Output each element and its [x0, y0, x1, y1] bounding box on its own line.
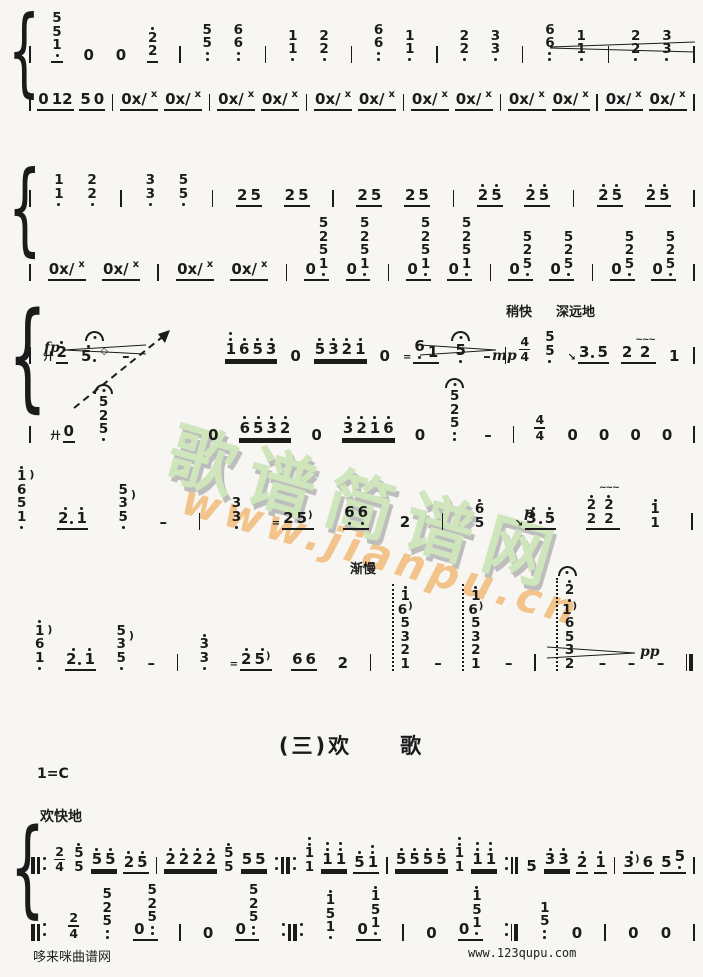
- note-token: 5: [666, 258, 675, 278]
- note-token: 1: [371, 884, 380, 904]
- note-group: 0x/x: [217, 92, 255, 111]
- note-digit: 6: [643, 855, 653, 870]
- note-digit: 1: [669, 349, 679, 364]
- barline: [112, 94, 114, 111]
- note-group: 0x/x: [358, 92, 396, 111]
- note-token: 2: [357, 188, 367, 203]
- note-group: 0x/x: [261, 92, 299, 111]
- octave-dot-below: [323, 58, 326, 61]
- note-cell: 55: [660, 849, 686, 874]
- superscript-mark: x: [195, 89, 201, 100]
- end-repeat-barline: [504, 922, 518, 941]
- octave-dot-below: [122, 526, 125, 529]
- note-token: 0: [94, 92, 104, 107]
- note-token: 0x/: [359, 92, 385, 107]
- note-cell: 525: [101, 888, 112, 941]
- octave-dot-below: [91, 203, 94, 206]
- barline: [490, 264, 492, 281]
- note-digit: 0: [572, 926, 582, 941]
- note-token: 0: [661, 926, 671, 941]
- note-digit: 1: [305, 861, 314, 875]
- octave-dot-below: [543, 930, 546, 933]
- note-cell: 0x/x: [120, 92, 158, 111]
- note-digit: 5: [99, 423, 108, 437]
- note-cell: 0: [571, 926, 583, 941]
- note-token: 3: [343, 415, 353, 436]
- note-cell: 11: [471, 840, 497, 874]
- note-cell: 0: [660, 926, 672, 941]
- note-token: 5: [255, 852, 265, 867]
- octave-dot-below: [252, 926, 255, 929]
- time-signature: 24: [54, 846, 65, 874]
- staff-line-upper: 5510022556611226611223366112233: [28, 12, 696, 63]
- note-digit: 6: [240, 421, 250, 436]
- note-token: 3: [266, 336, 276, 357]
- barline: [351, 46, 353, 63]
- note-digit: 0: [64, 424, 74, 439]
- note-token: 0x/: [121, 92, 147, 107]
- time-signature: 44: [519, 336, 530, 364]
- note-token: 5: [102, 915, 111, 941]
- begin-repeat-barline: [31, 855, 47, 874]
- note-cell: 0: [598, 428, 610, 443]
- chord-stack: 55: [223, 841, 234, 874]
- mord-ornament: =: [272, 518, 280, 529]
- note-token: 2: [165, 846, 175, 867]
- octave-dot-above: [489, 842, 492, 845]
- double-repeat-barline: [274, 855, 297, 874]
- note-token: 5: [74, 841, 83, 861]
- note-cell: 0525: [235, 884, 260, 941]
- note-digit: 5: [148, 911, 157, 925]
- arpeggio-mark: ): [47, 623, 52, 636]
- barline: [592, 264, 594, 281]
- note-group: 2~~~2: [621, 338, 656, 364]
- note-digit: 1: [322, 852, 332, 867]
- note-digit: 6: [234, 37, 243, 51]
- superscript-mark: x: [261, 259, 267, 270]
- time-signature: 44: [534, 414, 545, 442]
- note-token: 5: [354, 849, 364, 870]
- octave-dot-below: [203, 667, 206, 670]
- note-token: 2: [622, 345, 632, 360]
- octave-dot-below: [408, 58, 411, 61]
- note-group: 0: [660, 926, 672, 941]
- note-token: 2: [283, 511, 293, 526]
- note-token: 5: [540, 915, 549, 941]
- staff-line: 1651)21535)–33=25)66265↘3522~~~2211: [16, 458, 694, 530]
- note-digit: 1: [472, 917, 481, 931]
- note-group: 55: [91, 846, 117, 871]
- note-digit: 0x/: [218, 92, 244, 107]
- note-token: 1: [17, 511, 26, 531]
- octave-dot-below: [206, 58, 209, 61]
- note-token: 5: [661, 855, 671, 870]
- note-digit: 3: [579, 345, 589, 360]
- note-token: 3: [328, 336, 338, 357]
- octave-dot-below: [252, 932, 255, 935]
- note-token: 1: [288, 43, 297, 63]
- note-group: 0: [83, 48, 95, 63]
- note-token: 5: [74, 861, 83, 875]
- octave-dot-below: [665, 58, 668, 61]
- note-group: 0151: [458, 884, 483, 941]
- note-cell: 11: [287, 30, 298, 63]
- staff-line-upper: 245555252222555511115155551111533213)655: [30, 832, 696, 874]
- begin-repeat-barline: [31, 922, 47, 941]
- note-group: 0525: [651, 231, 676, 282]
- note-group: 22~~~22: [586, 486, 620, 530]
- note-token: 0: [134, 922, 144, 937]
- note-digit: 0x/: [49, 262, 75, 277]
- note-digit: 2: [237, 188, 247, 203]
- note-digit: 1: [326, 921, 335, 935]
- note-token: –: [484, 428, 492, 443]
- note-token: 0: [357, 922, 367, 937]
- octave-dot-below: [494, 58, 497, 61]
- note-token: 0x/: [315, 92, 341, 107]
- octave-dot-below: [348, 522, 351, 525]
- note-cell: 1653: [225, 330, 278, 364]
- note-digit: 5: [202, 37, 211, 51]
- note-digit: 3: [200, 652, 209, 666]
- barline: [691, 513, 693, 530]
- chord-stack: 161: [34, 619, 45, 672]
- note-group: 66: [291, 652, 317, 671]
- note-cell: 2: [399, 515, 411, 530]
- note-digit: 3: [545, 852, 555, 867]
- note-token: 3: [491, 43, 500, 63]
- note-cell: 05251: [447, 217, 472, 281]
- note-token: 0x/: [509, 92, 535, 107]
- chord-stack: 525: [523, 231, 532, 278]
- note-token: 1: [305, 861, 314, 875]
- note-cell: 3216: [342, 415, 395, 443]
- note-digit: 5: [119, 511, 128, 525]
- note-token: 5: [545, 345, 554, 365]
- note-group: 0x/x: [508, 92, 546, 111]
- note-digit: 3: [624, 855, 634, 870]
- octave-dot-below: [424, 273, 427, 276]
- superscript-mark: x: [133, 259, 139, 270]
- octave-dot-below: [237, 58, 240, 61]
- note-token: 3: [545, 846, 555, 867]
- note-group: 25: [356, 188, 382, 207]
- note-group: 25): [240, 646, 271, 671]
- note-token: 2: [148, 45, 157, 59]
- note-token: 2: [206, 846, 216, 867]
- octave-dot-below: [237, 52, 240, 55]
- note-token: 0x/: [606, 92, 632, 107]
- note-digit: 2: [58, 511, 68, 526]
- note-group: 0x/x: [552, 92, 590, 111]
- note-digit: 2: [87, 188, 96, 202]
- note-digit: 5: [249, 911, 258, 925]
- note-group: 1: [594, 849, 606, 874]
- note-group: 5321: [314, 336, 367, 361]
- note-digit: 5: [253, 421, 263, 436]
- note-cell: 66: [373, 24, 384, 63]
- note-group: 5555: [395, 846, 448, 871]
- note-cell: =25): [272, 511, 314, 530]
- shake-ornament: 廾: [51, 427, 61, 442]
- note-cell: 0: [289, 349, 301, 364]
- note-group: 2: [337, 656, 349, 671]
- note-digit: 2: [622, 345, 632, 360]
- chord-stack: 525: [148, 884, 157, 937]
- note-token: 0: [203, 926, 213, 941]
- note-digit: 2: [241, 652, 251, 667]
- note-cell: 05251: [304, 217, 329, 281]
- note-group: 0x/x: [605, 92, 643, 111]
- note-digit: 5: [625, 258, 634, 272]
- note-token: 0: [426, 926, 436, 941]
- chord-stack: 22: [587, 493, 596, 526]
- barline: [534, 654, 536, 671]
- note-token: 1: [471, 658, 480, 672]
- note-digit: 2: [478, 188, 488, 203]
- note-digit: 2: [598, 188, 608, 203]
- note-group: 3216: [342, 415, 395, 440]
- note-token: 1: [322, 840, 332, 867]
- augmentation-dot: [539, 521, 542, 524]
- note-cell: 11: [454, 835, 465, 874]
- note-group: 0: [202, 926, 214, 941]
- note-digit: 6: [306, 652, 316, 667]
- note-cell: 012: [37, 92, 73, 111]
- note-digit: 0: [628, 926, 638, 941]
- arpeggio-mark: ): [266, 652, 271, 662]
- note-token: 3: [232, 511, 241, 531]
- note-token: 0: [628, 926, 638, 941]
- note-token: 0: [630, 428, 640, 443]
- octave-dot-below: [106, 936, 109, 939]
- scanned-music-sheet: { "titles": { "section": "(三)欢 歌", "key"…: [0, 0, 703, 977]
- note-digit: 5: [371, 188, 381, 203]
- note-cell: 05251: [406, 217, 431, 281]
- note-digit: 5: [545, 511, 555, 526]
- note-token: 0x/: [262, 92, 288, 107]
- note-cell: 0x/x: [102, 262, 140, 281]
- note-digit: 0: [203, 926, 213, 941]
- note-group: 11: [471, 840, 497, 871]
- note-digit: 2: [587, 513, 596, 527]
- note-group: 0x/x: [230, 262, 268, 281]
- note-digit: 2: [280, 421, 290, 436]
- note-group: 0525: [133, 884, 158, 941]
- note-token: 5: [92, 846, 102, 867]
- note-digit: 0x/: [359, 92, 385, 107]
- note-cell: 25: [236, 188, 262, 207]
- note-cell: 66: [291, 652, 317, 671]
- note-digit: 5: [675, 849, 685, 864]
- key-signature: 1=C: [37, 766, 69, 782]
- note-token: 0: [380, 349, 390, 364]
- octave-dot-below: [149, 203, 152, 206]
- octave-dot-below: [453, 432, 456, 435]
- repeat-dots: [43, 922, 46, 938]
- note-token: 2: [604, 513, 613, 527]
- note-token: 5: [252, 336, 262, 357]
- repeat-dots: [43, 855, 46, 871]
- chord-stack: 5251: [319, 217, 328, 277]
- note-digit: 2: [66, 652, 76, 667]
- barline: [370, 654, 372, 671]
- superscript-mark: x: [388, 89, 394, 100]
- octave-dot-below: [453, 438, 456, 441]
- note-token: 1: [360, 258, 369, 278]
- barline: [29, 426, 31, 443]
- superscript-mark: x: [442, 89, 448, 100]
- note-cell: 0: [661, 428, 673, 443]
- barline: [453, 190, 455, 207]
- octave-dot-below: [38, 667, 41, 670]
- note-digit: 0: [459, 922, 469, 937]
- note-group: 05251: [346, 217, 371, 281]
- glissando-arrow: [66, 322, 181, 417]
- note-digit: 2: [565, 658, 574, 672]
- note-digit: 2: [577, 855, 587, 870]
- note-cell: 25: [524, 182, 550, 207]
- note-digit: 5: [179, 188, 188, 202]
- chord-stack: 33: [490, 30, 501, 63]
- note-cell: 0x/x: [649, 92, 687, 111]
- note-token: 5: [242, 852, 252, 867]
- barline: [693, 190, 695, 207]
- chord-stack: 535: [115, 625, 126, 672]
- note-token: 2: [237, 188, 247, 203]
- octave-dot-below: [628, 273, 631, 276]
- note-token: 6: [475, 497, 484, 517]
- crescendo-hairpin: [548, 40, 698, 54]
- note-group: 1653: [225, 330, 278, 361]
- note-digit: 5: [116, 652, 125, 666]
- note-cell: 525: [445, 378, 464, 443]
- note-token: 1: [405, 43, 414, 63]
- note-token: 3: [200, 632, 209, 652]
- note-cell: 25: [284, 188, 310, 207]
- note-digit: 2: [640, 345, 650, 360]
- note-digit: 5: [661, 855, 671, 870]
- note-group: 0: [571, 926, 583, 941]
- note-token: 2: [179, 846, 189, 867]
- chord-stack: 535: [118, 484, 129, 531]
- system-1: 5510022556611226611223366112233 012500x/…: [28, 12, 696, 111]
- octave-dot-below: [634, 58, 637, 61]
- note-group: 3)6: [623, 849, 654, 874]
- note-token: 2: [241, 646, 251, 667]
- note-token: 5: [148, 911, 157, 937]
- note-token: 5: [612, 182, 622, 203]
- octave-dot-below: [669, 273, 672, 276]
- note-token: 2: [356, 415, 366, 436]
- chord-stack: 55: [73, 841, 84, 874]
- note-token: 6: [306, 652, 316, 667]
- arpeggio-mark: ): [308, 511, 313, 521]
- note-cell: 25: [123, 849, 149, 874]
- note-digit: 0: [94, 92, 104, 107]
- footer-site-url: www.123qupu.com: [468, 946, 576, 960]
- note-cell: 25: [477, 182, 503, 207]
- note-cell: 11: [53, 174, 64, 207]
- note-digit: 1: [472, 852, 482, 867]
- barline: [29, 190, 31, 207]
- note-token: 0x/: [553, 92, 579, 107]
- barline: [157, 264, 159, 281]
- repeat-dots: [275, 855, 278, 871]
- note-group: 2: [399, 515, 411, 530]
- note-cell: 0x/x: [605, 92, 643, 111]
- chord-stack: 151: [371, 884, 380, 937]
- note-group: –: [504, 656, 514, 671]
- note-token: 2: [58, 505, 73, 526]
- note-token: 5: [99, 423, 108, 443]
- chord-stack: 33: [145, 174, 156, 207]
- note-group: 0: [310, 428, 322, 443]
- note-cell: 0: [414, 428, 426, 443]
- note-digit: 0: [380, 349, 390, 364]
- note-token: ~~~2: [635, 338, 655, 360]
- octave-dot-below: [151, 926, 154, 929]
- note-token: ~~~2: [599, 486, 619, 513]
- end-repeat-barline: [504, 855, 518, 874]
- note-token: 0x/: [650, 92, 676, 107]
- note-cell: 0525: [508, 231, 533, 282]
- note-token: 5: [436, 846, 446, 867]
- note-digit: 3: [558, 852, 568, 867]
- note-digit: 2: [525, 188, 535, 203]
- note-cell: 0x/x: [176, 262, 214, 281]
- note-token: 6: [643, 855, 653, 870]
- note-digit: 0: [311, 428, 321, 443]
- note-token: 5: [418, 188, 428, 203]
- arpeggio-mark: ): [573, 602, 578, 612]
- note-digit: 3: [146, 188, 155, 202]
- note-digit: 1: [319, 258, 328, 272]
- note-cell: 55: [91, 846, 117, 874]
- octave-dot-above: [371, 845, 374, 848]
- note-group: 0: [629, 428, 641, 443]
- note-token: 6: [358, 505, 368, 526]
- note-token: 1: [355, 336, 365, 357]
- note-digit: 2: [148, 45, 157, 59]
- arpeggio-mark: ): [635, 855, 640, 865]
- note-group: 0: [115, 48, 127, 63]
- note-token: 2: [565, 578, 574, 598]
- superscript-mark: x: [248, 89, 254, 100]
- note-group: 25: [645, 182, 671, 207]
- note-digit: 5: [102, 915, 111, 929]
- note-token: 0x/: [177, 262, 203, 277]
- note-token: 0x/: [456, 92, 482, 107]
- chord-stack: 151: [325, 888, 336, 941]
- tempo-annotation-shaokuai: 稍快: [506, 301, 532, 320]
- note-cell: 66: [343, 505, 369, 530]
- note-cell: 50: [79, 92, 105, 111]
- note-digit: 5: [666, 258, 675, 272]
- octave-dot-below: [377, 58, 380, 61]
- note-group: 05251: [406, 217, 431, 281]
- note-digit: 5: [74, 861, 83, 875]
- note-group: 25: [123, 849, 149, 874]
- note-group: 11: [321, 840, 347, 871]
- note-cell: 551: [51, 12, 62, 63]
- note-digit: 2: [206, 852, 216, 867]
- note-digit: 0: [415, 428, 425, 443]
- note-cell: ↘35: [568, 345, 609, 364]
- note-cell: 151: [325, 888, 336, 941]
- octave-dot-below: [463, 58, 466, 61]
